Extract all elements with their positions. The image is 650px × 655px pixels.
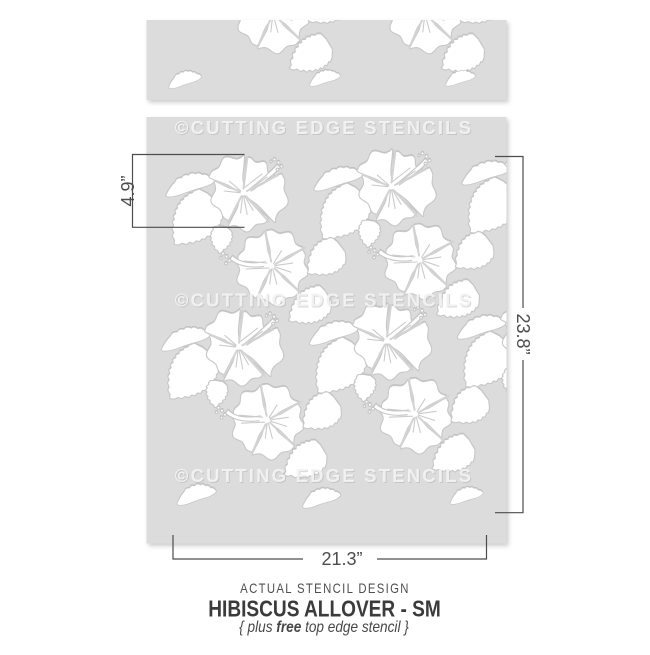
svg-text:©CUTTING EDGE STENCILS: ©CUTTING EDGE STENCILS <box>175 117 473 138</box>
svg-text:©CUTTING EDGE STENCILS: ©CUTTING EDGE STENCILS <box>175 465 473 486</box>
svg-text:{ plus free top edge stencil }: { plus free top edge stencil } <box>239 619 409 636</box>
svg-text:4.9”: 4.9” <box>118 175 138 206</box>
svg-text:23.8”: 23.8” <box>513 313 533 354</box>
svg-text:21.3”: 21.3” <box>321 549 362 569</box>
svg-text:©CUTTING EDGE STENCILS: ©CUTTING EDGE STENCILS <box>175 290 473 311</box>
svg-text:HIBISCUS ALLOVER - SM: HIBISCUS ALLOVER - SM <box>208 597 441 622</box>
svg-text:ACTUAL STENCIL DESIGN: ACTUAL STENCIL DESIGN <box>240 581 410 596</box>
